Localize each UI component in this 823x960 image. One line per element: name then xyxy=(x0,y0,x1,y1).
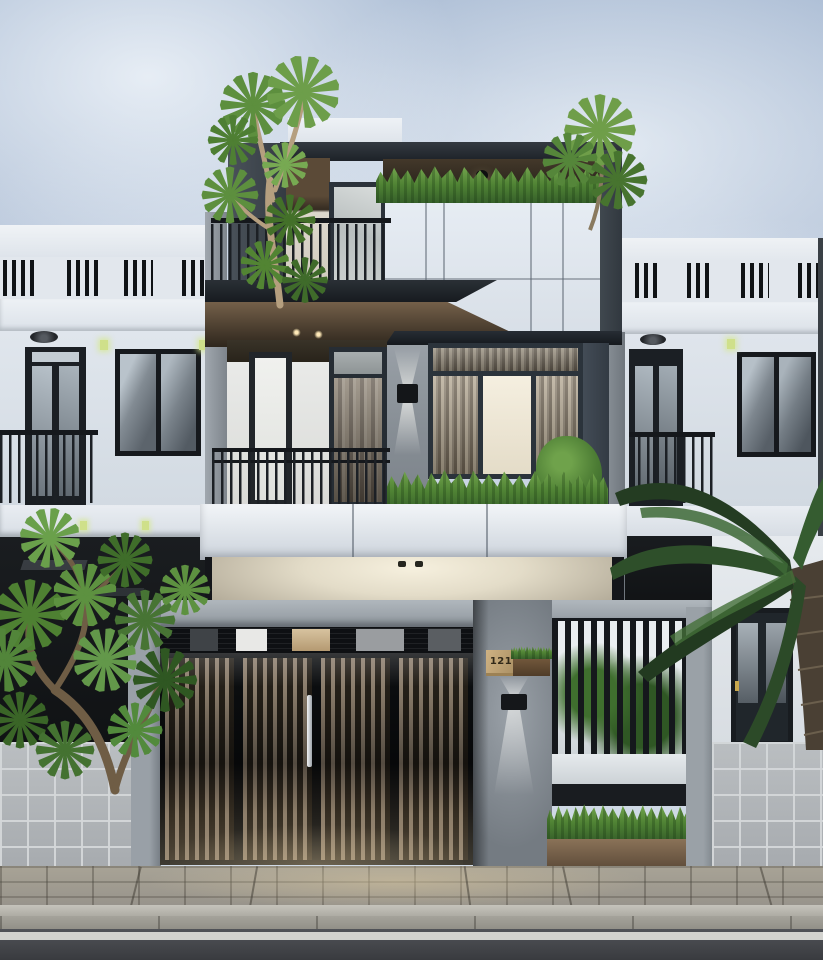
palm-fronds xyxy=(610,478,823,748)
vent-slats xyxy=(67,260,98,296)
ground-light-glow xyxy=(170,820,463,865)
gate-handle xyxy=(320,695,325,767)
panel-seam xyxy=(385,278,600,280)
road-white-line xyxy=(0,932,823,940)
ceiling-spotlight xyxy=(398,561,406,567)
vent-slats xyxy=(687,263,709,298)
ceiling-light xyxy=(30,331,58,343)
street-palm-tree-right xyxy=(610,420,823,790)
left-neighbor-balcony-railing xyxy=(0,430,98,503)
ceiling-light xyxy=(640,334,666,345)
outdoor-wall-lamp xyxy=(501,694,527,710)
door-transom xyxy=(32,352,79,362)
vent-slats xyxy=(124,260,153,296)
window-mullion xyxy=(478,371,483,474)
ceiling-spotlight xyxy=(415,561,423,567)
curtain-pane xyxy=(433,376,478,474)
panel-seam xyxy=(352,504,354,560)
rooftop-palm-right xyxy=(530,95,645,230)
up-down-wall-lamp xyxy=(397,384,418,403)
paved-sidewalk xyxy=(0,866,823,910)
soffit-downlight xyxy=(314,330,323,339)
carport-ceiling xyxy=(211,557,615,603)
railing-bars xyxy=(0,435,98,503)
window-mullion xyxy=(531,371,536,474)
white-parapet-planter-band xyxy=(200,504,627,560)
curb-top xyxy=(0,905,823,916)
transom-reflection xyxy=(428,629,461,651)
vent-slats xyxy=(741,263,769,298)
palm-foliage xyxy=(534,94,648,209)
architectural-render-scene: 121 xyxy=(0,0,823,960)
door-transom xyxy=(334,352,382,378)
house-number-wall xyxy=(473,600,552,872)
transom-reflection xyxy=(236,629,267,651)
left-neighbor-roof-fascia xyxy=(0,225,215,259)
soffit-downlight xyxy=(292,328,301,337)
transom-reflection xyxy=(292,629,330,651)
left-neighbor-band xyxy=(0,299,215,331)
vent-slats xyxy=(3,260,39,296)
terrace-dracaena-tree xyxy=(195,70,345,310)
window-pane xyxy=(120,354,156,451)
window-pane xyxy=(161,354,196,451)
second-floor-railing xyxy=(212,448,390,506)
vent-slats xyxy=(635,263,657,298)
window-transom xyxy=(433,348,578,371)
lit-center-pane xyxy=(483,376,531,474)
gate-handle xyxy=(307,695,312,767)
transom-reflection xyxy=(356,629,404,651)
small-wall-light xyxy=(727,339,735,349)
small-wall-light xyxy=(100,340,108,350)
railing-bars xyxy=(212,452,390,506)
left-neighbor-window xyxy=(115,349,201,456)
right-neighbor-band xyxy=(612,302,823,334)
tropical-tree-left xyxy=(0,500,225,790)
panel-seam xyxy=(486,504,488,560)
